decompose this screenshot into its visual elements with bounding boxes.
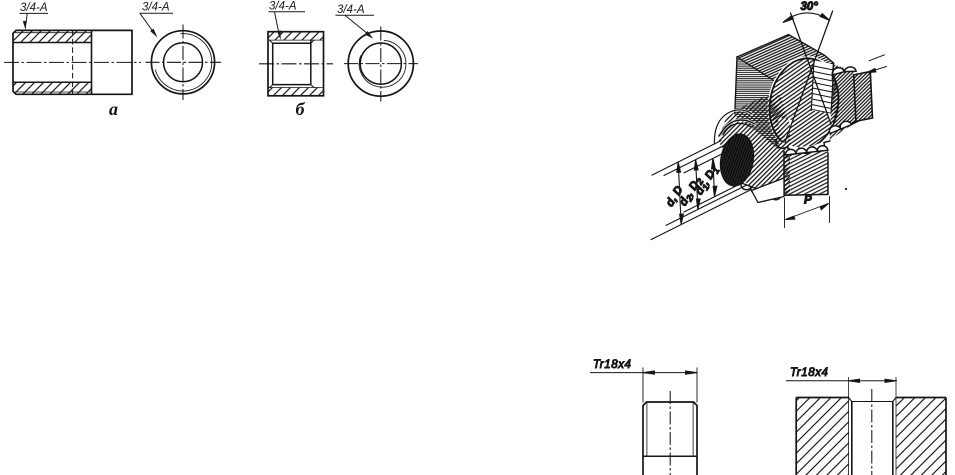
svg-text:Tr18x4: Tr18x4 (790, 367, 829, 379)
svg-text:3/4-A: 3/4-A (142, 2, 170, 14)
svg-text:б: б (296, 99, 306, 119)
svg-text:3/4-A: 3/4-A (269, 1, 297, 13)
svg-text:3/4-A: 3/4-A (337, 4, 365, 16)
svg-text:а: а (109, 99, 118, 119)
svg-text:30°: 30° (801, 1, 819, 13)
svg-text:Tr18x4: Tr18x4 (593, 359, 632, 371)
svg-text:P: P (804, 195, 812, 207)
svg-text:3/4-A: 3/4-A (20, 2, 48, 14)
